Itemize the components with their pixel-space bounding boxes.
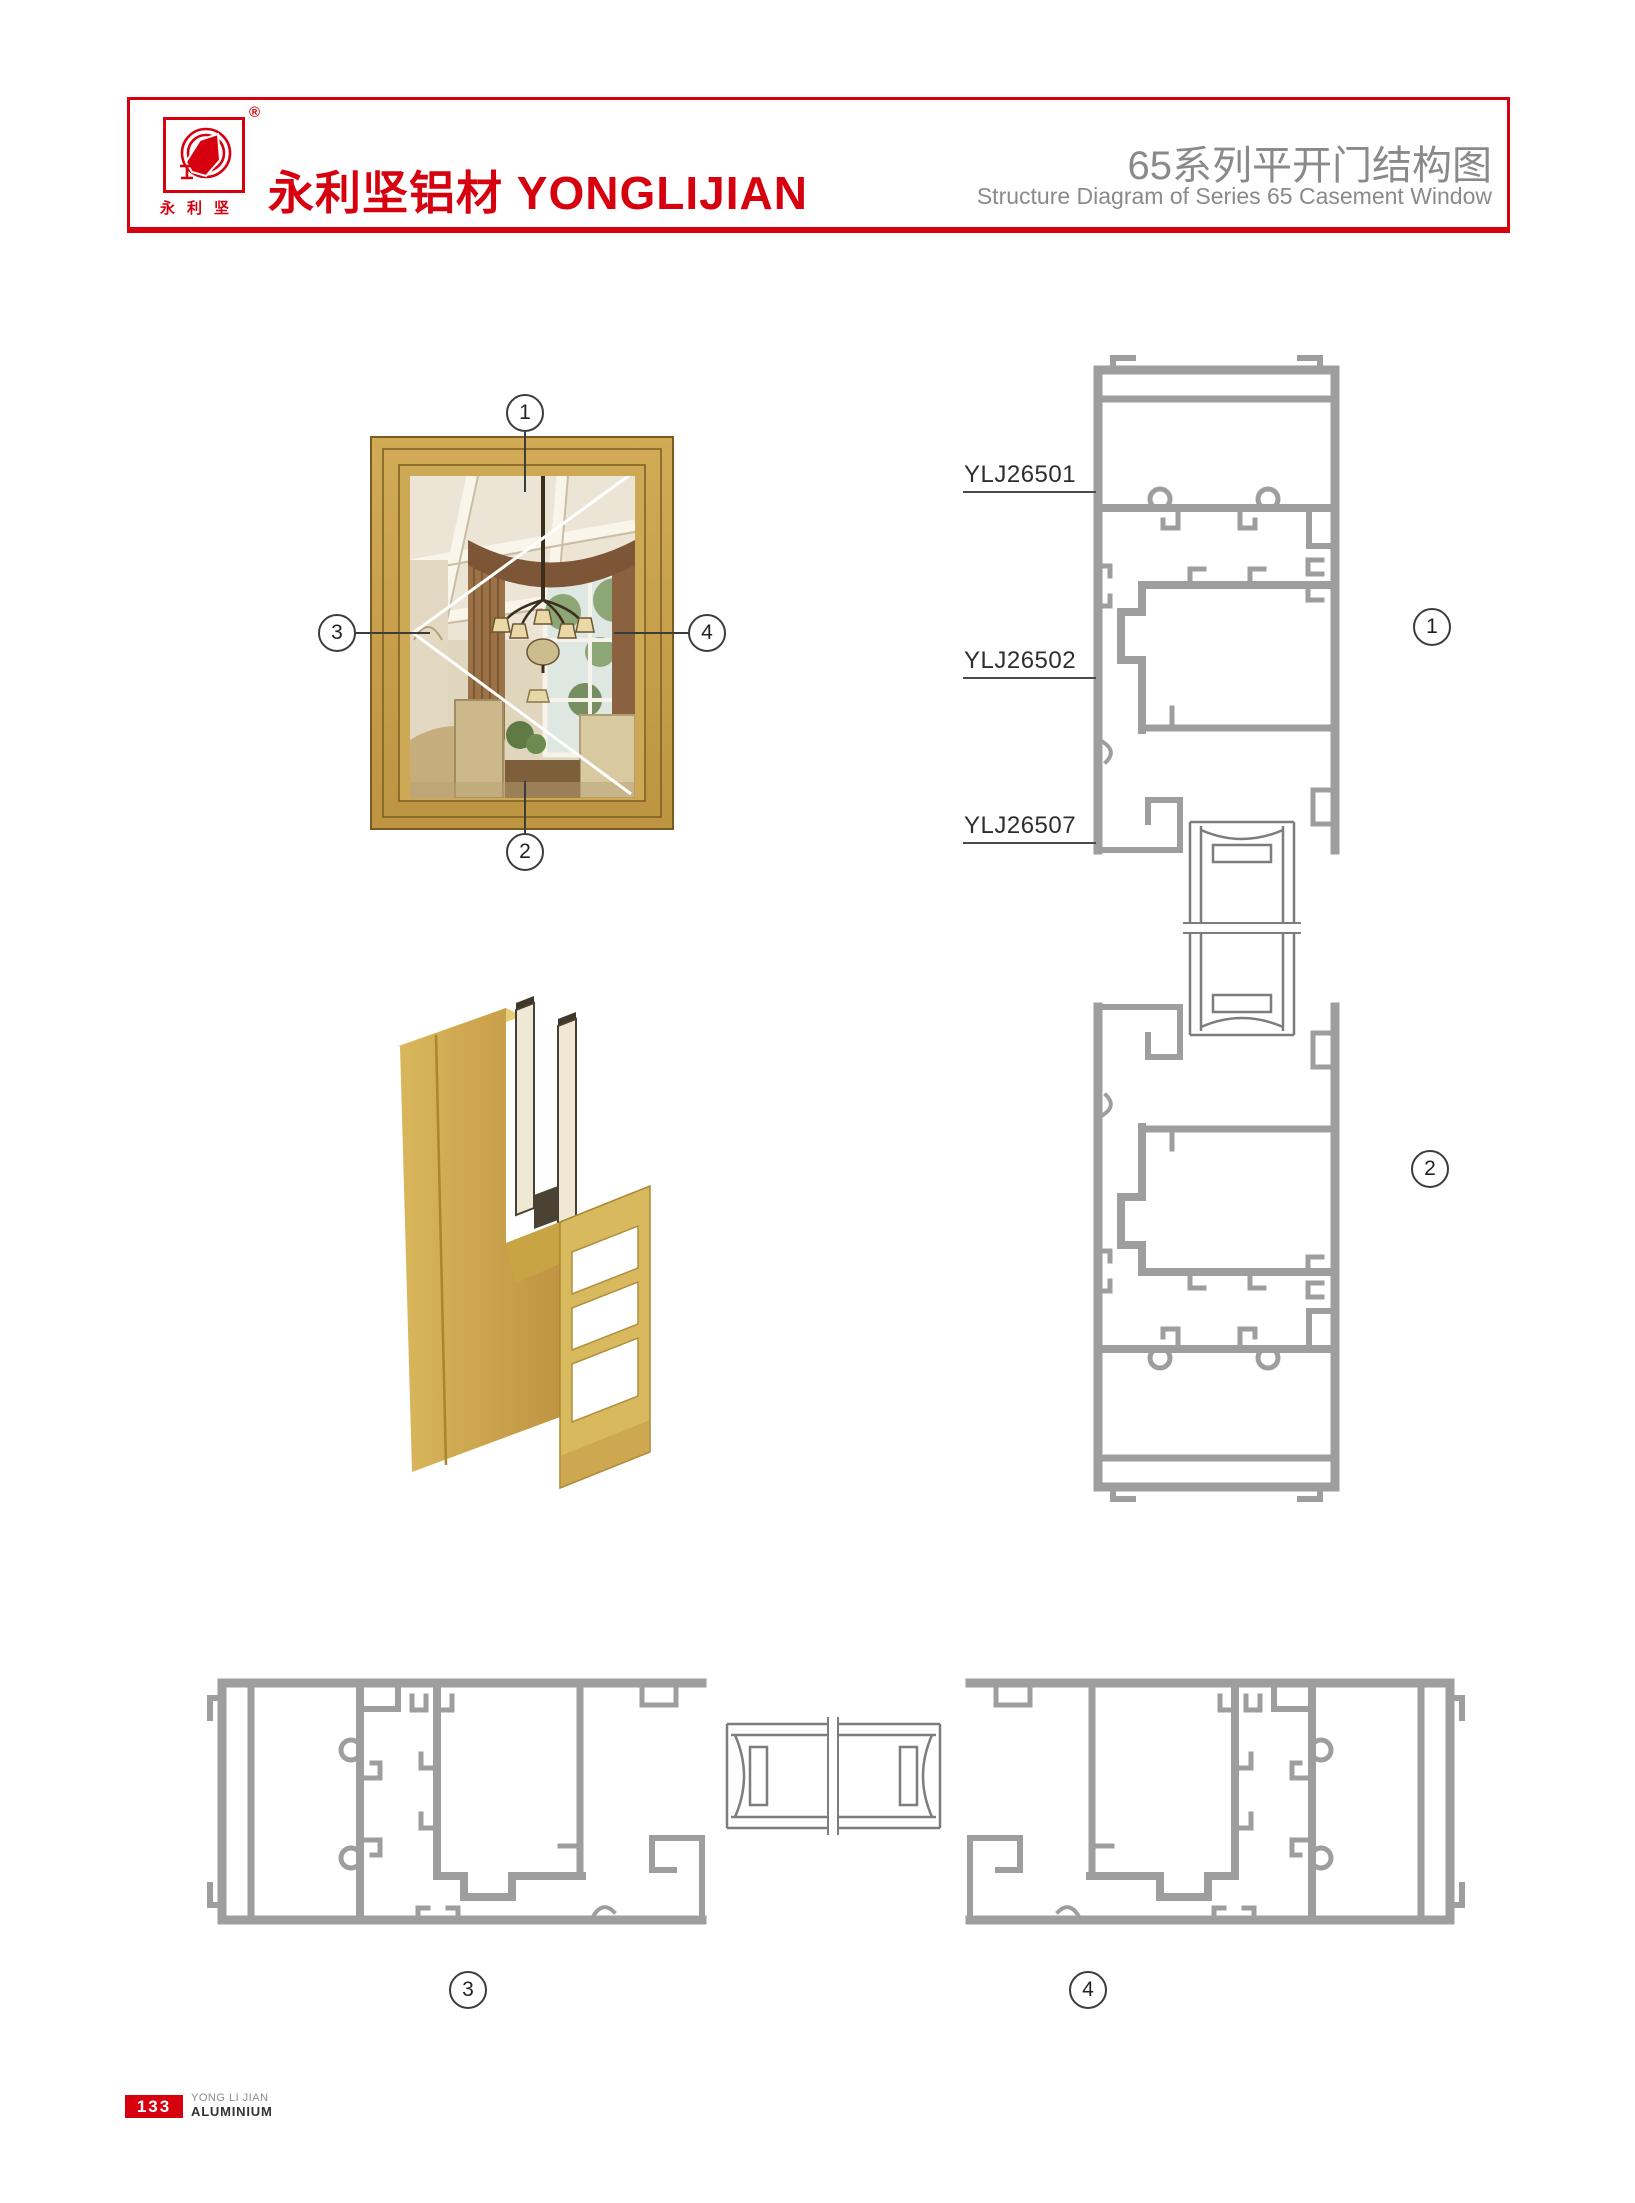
section-callout-3: 3	[449, 1971, 487, 2009]
window-illustration	[356, 432, 688, 833]
window-callout-4: 4	[688, 614, 726, 652]
technical-drawing-canvas	[0, 0, 1635, 2203]
footer-company-line2: ALUMINIUM	[191, 2104, 273, 2119]
window-callout-2: 2	[506, 833, 544, 871]
page-number-badge: 133	[125, 2095, 183, 2118]
section-callout-2: 2	[1411, 1150, 1449, 1188]
horizontal-section-right-profile	[970, 1683, 1462, 1920]
profile-3d-render	[398, 996, 650, 1488]
profile-label-1: YLJ26501	[964, 461, 1076, 489]
window-callout-3: 3	[318, 614, 356, 652]
profile-label-3: YLJ26507	[964, 812, 1076, 840]
interior-scene	[410, 474, 637, 798]
section-callout-1: 1	[1413, 608, 1451, 646]
footer-company-line1: YONG LI JIAN	[191, 2092, 269, 2104]
horizontal-section-left-profile	[210, 1683, 702, 1920]
vertical-glass-unit	[1183, 822, 1301, 1035]
horizontal-glass-unit	[727, 1717, 940, 1835]
window-callout-1: 1	[506, 394, 544, 432]
catalog-page: ® 永利坚 永利坚铝材 YONGLIJIAN 65系列平开门结构图 Struct…	[0, 0, 1635, 2203]
section-callout-4: 4	[1069, 1971, 1107, 2009]
vertical-section-top-profile	[1098, 358, 1335, 850]
profile-label-2: YLJ26502	[964, 647, 1076, 675]
vertical-section-bottom-profile	[1098, 1007, 1335, 1499]
